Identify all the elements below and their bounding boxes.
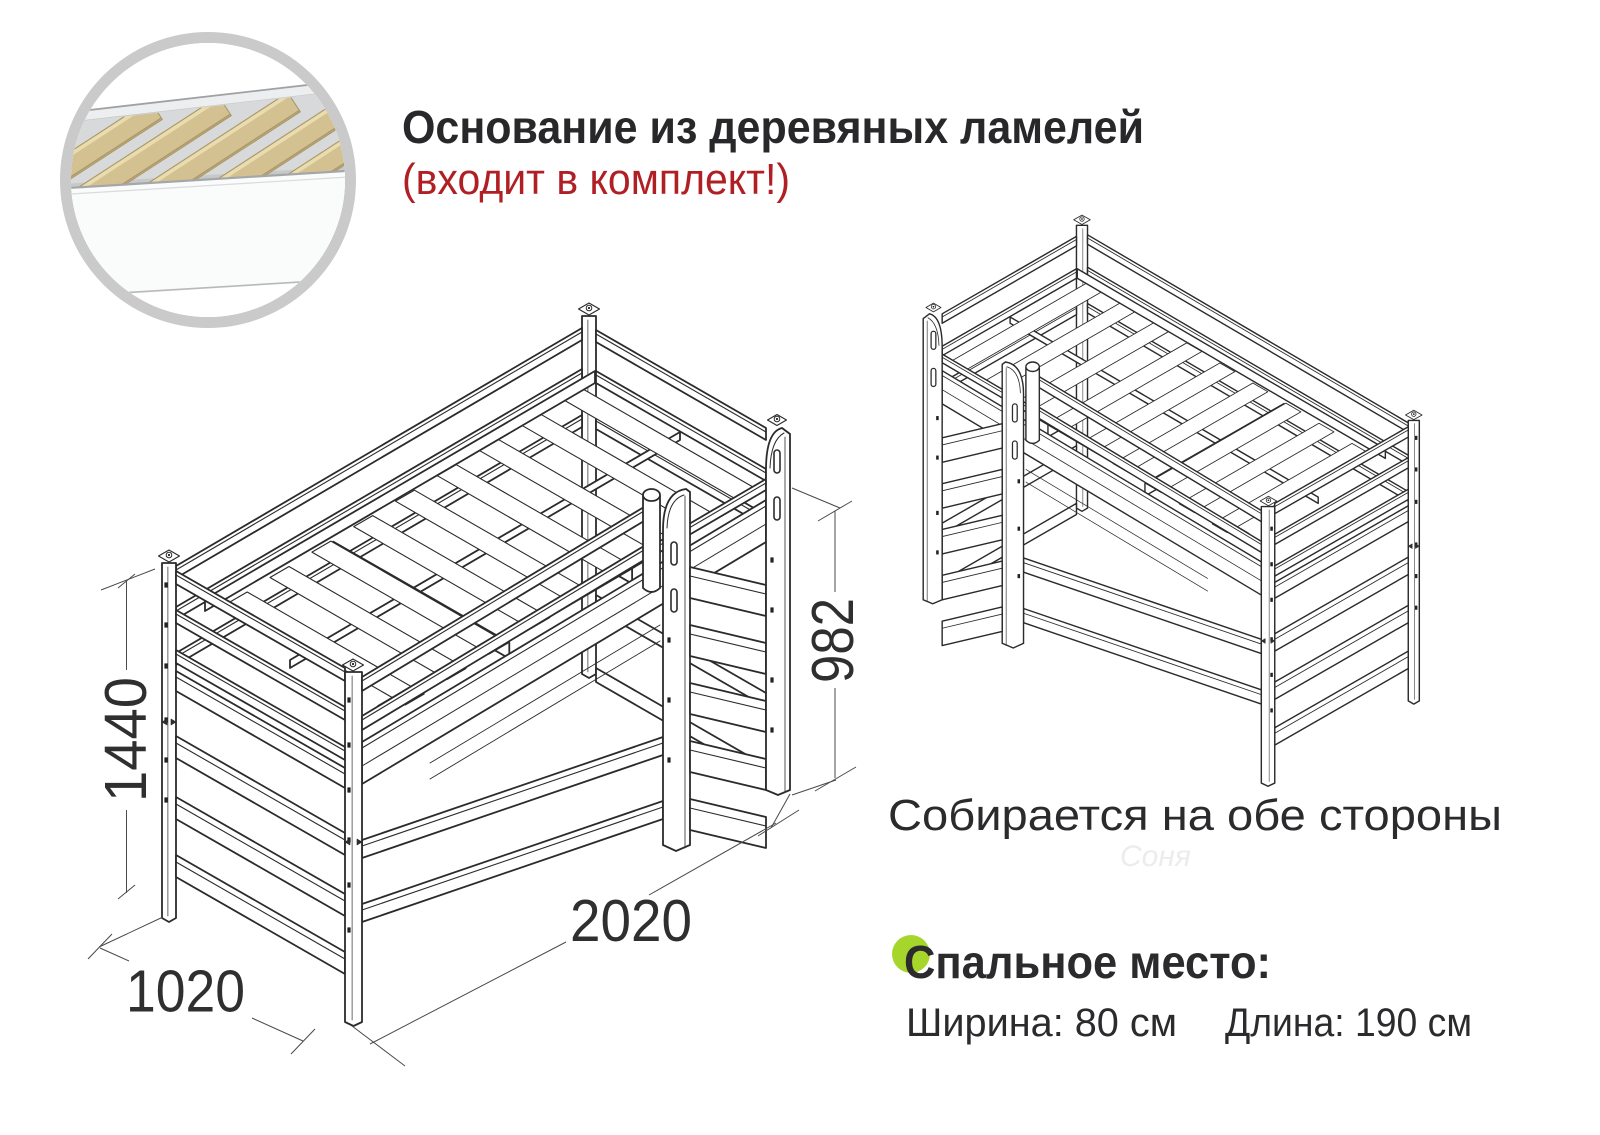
svg-text:2020: 2020 (570, 888, 692, 954)
svg-text:Соня: Соня (1120, 840, 1191, 873)
svg-text:1440: 1440 (93, 677, 159, 802)
svg-text:Длина: 190 см: Длина: 190 см (1225, 1001, 1472, 1045)
svg-text:1020: 1020 (126, 959, 245, 1025)
svg-text:Спальное место:: Спальное место: (904, 936, 1271, 988)
svg-text:982: 982 (800, 598, 866, 683)
svg-text:Ширина: 80 см: Ширина: 80 см (906, 1001, 1177, 1045)
svg-text:(входит в комплект!): (входит в комплект!) (402, 155, 790, 204)
svg-text:Основание из деревяных ламелей: Основание из деревяных ламелей (402, 101, 1144, 153)
svg-text:Собирается на обе стороны: Собирается на обе стороны (888, 791, 1502, 840)
